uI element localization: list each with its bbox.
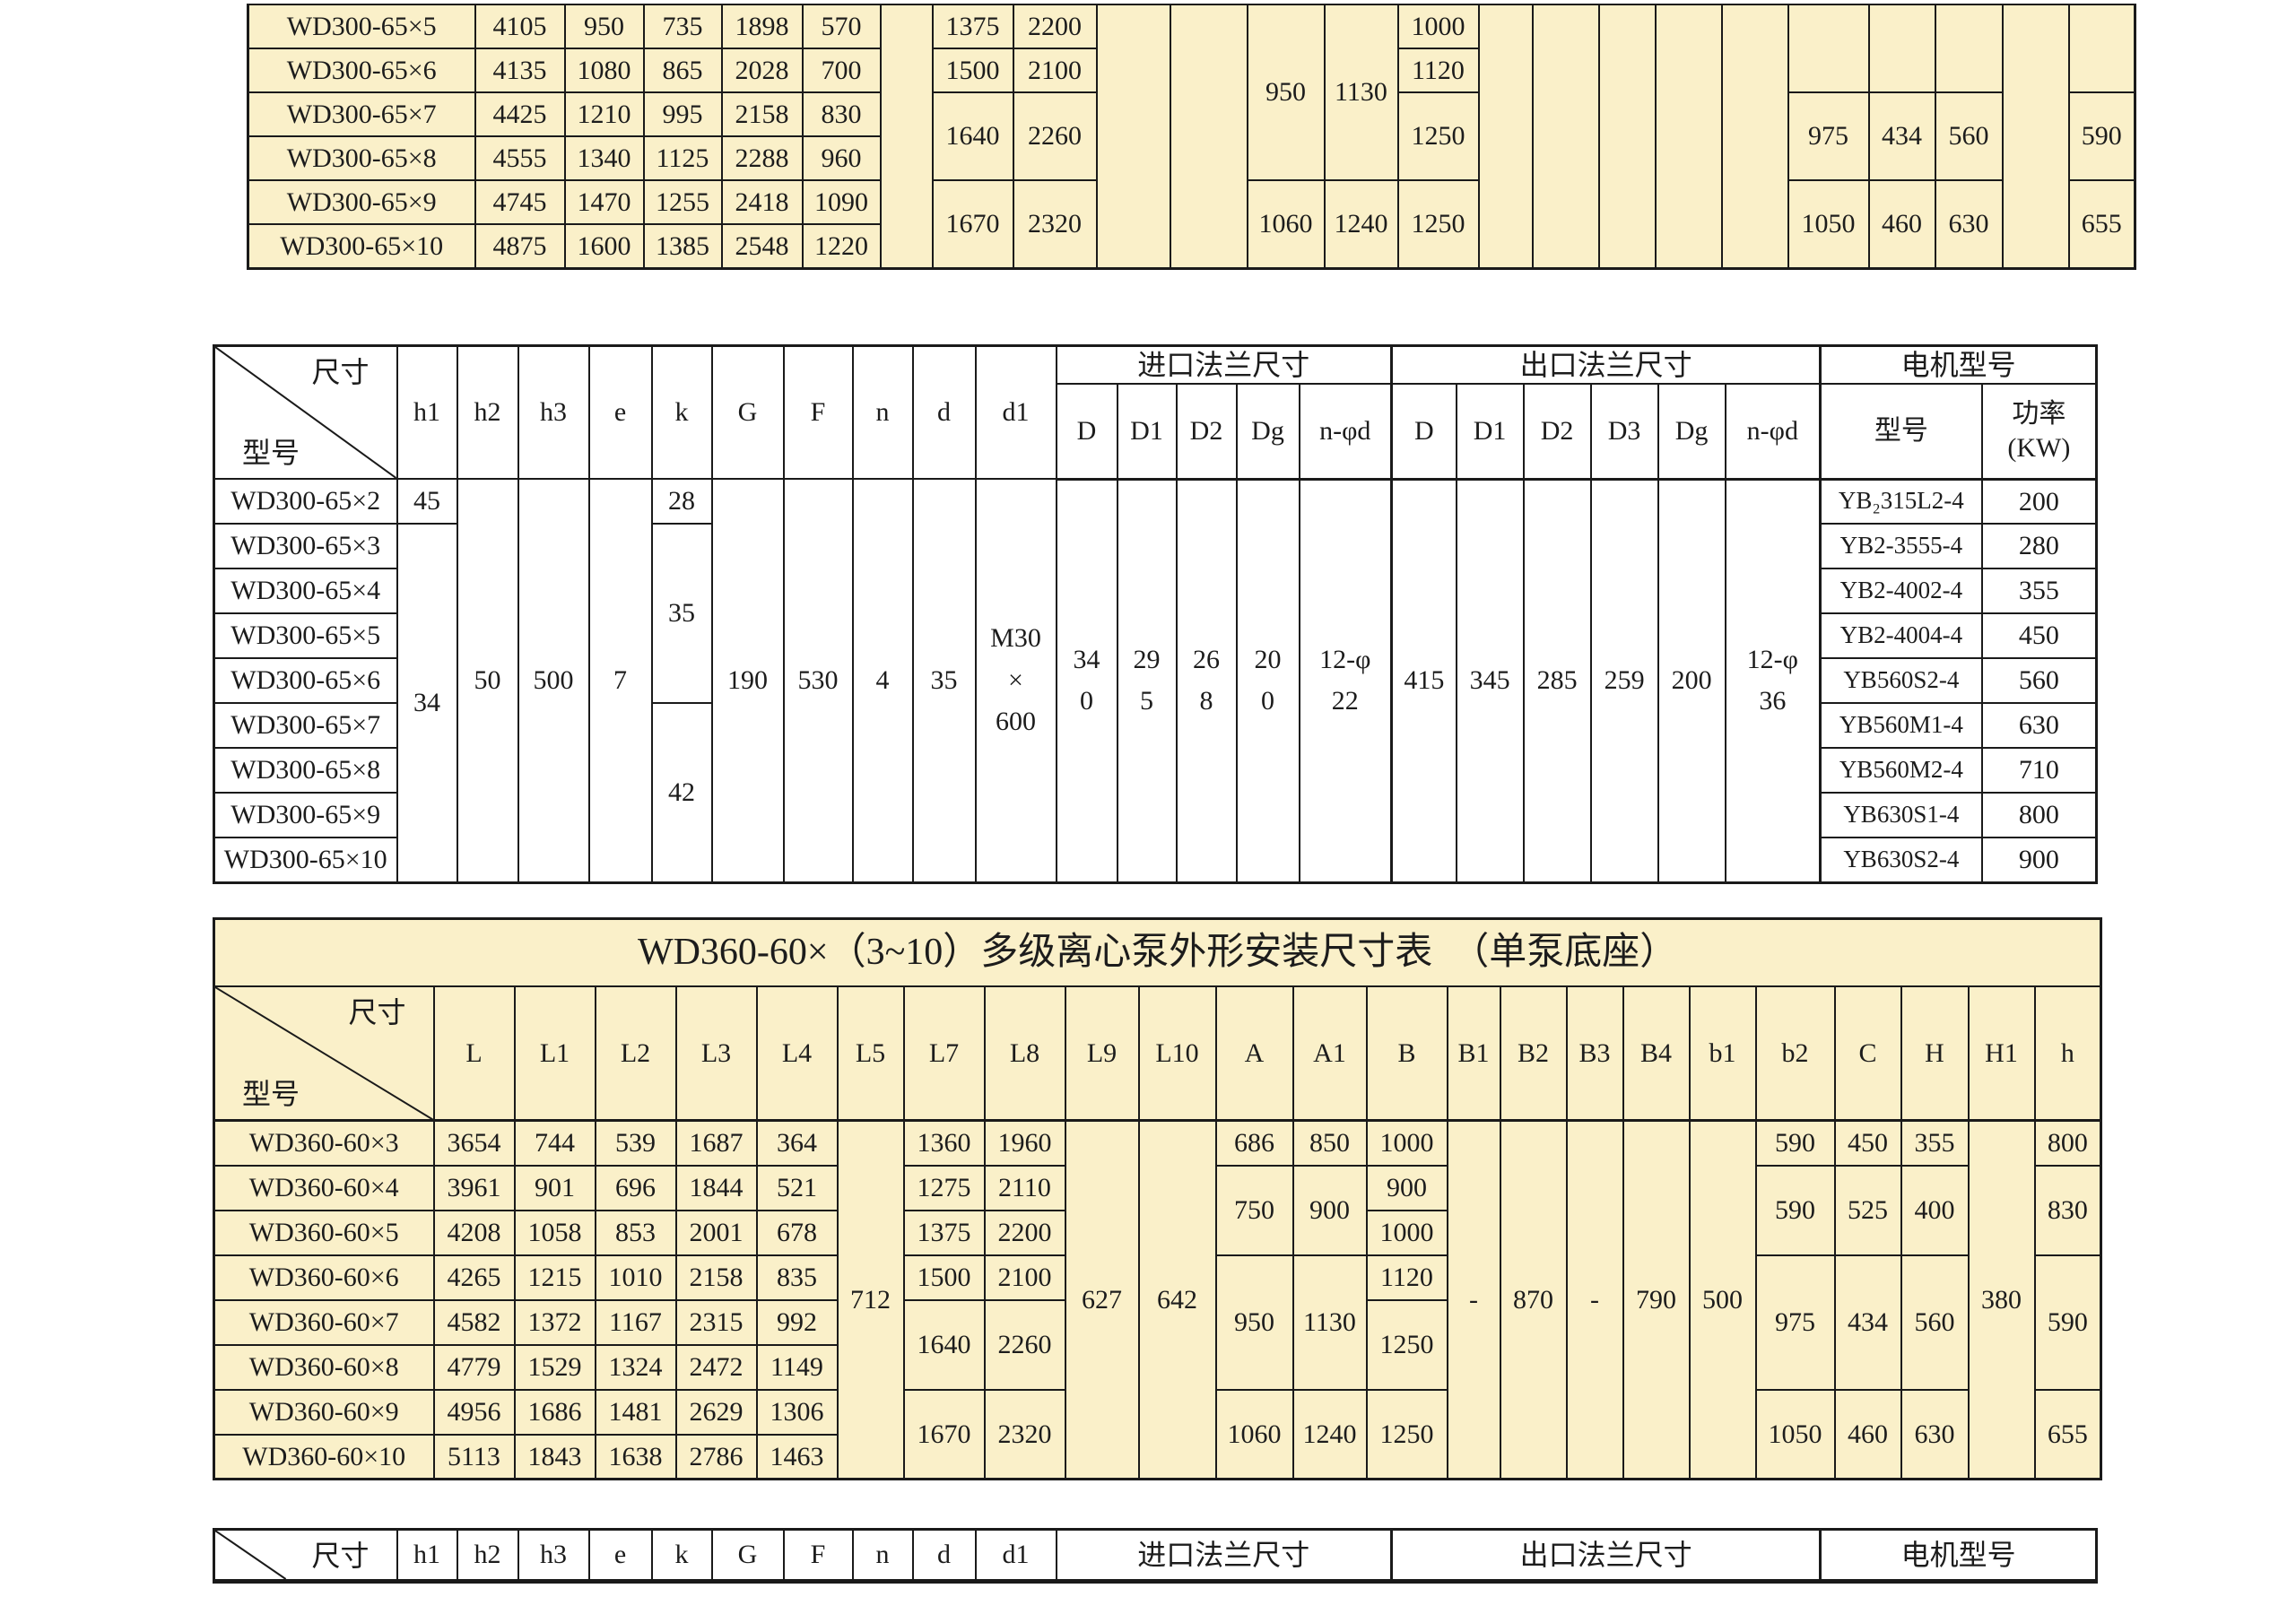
table-cell: d: [913, 1530, 976, 1582]
model-cell: WD360-60×9: [214, 1390, 434, 1435]
table-cell: 696: [596, 1166, 676, 1211]
table-cell: 2320: [985, 1390, 1065, 1480]
table-cell: -: [1448, 1121, 1500, 1480]
table-cell: 2315: [676, 1300, 757, 1345]
table-cell: 1167: [596, 1300, 676, 1345]
table-cell: 900: [1982, 838, 2097, 882]
table-cell: 3654: [434, 1121, 515, 1166]
table-cell: 530: [784, 479, 853, 882]
table-cell: 960: [803, 136, 881, 180]
table-cell: 1240: [1293, 1390, 1367, 1480]
table-cell: 1600: [565, 224, 644, 268]
table-cell: L4: [757, 986, 838, 1121]
table-cell: 500: [1690, 1121, 1756, 1480]
model-cell: WD360-60×4: [214, 1166, 434, 1211]
table-cell: 975: [1788, 92, 1869, 180]
table-cell: 1638: [596, 1435, 676, 1480]
model-cell: WD360-60×10: [214, 1435, 434, 1480]
table-cell: 259: [1591, 479, 1658, 882]
table-cell: L1: [515, 986, 596, 1121]
table-cell: L7: [904, 986, 985, 1121]
table-cell: n-φd: [1300, 384, 1392, 479]
table-cell: 560: [1901, 1255, 1969, 1390]
table-cell: 45: [397, 479, 457, 524]
table-cell: L8: [985, 986, 1065, 1121]
table-cell: 1149: [757, 1345, 838, 1390]
table-cell: 4425: [475, 92, 565, 136]
table-cell: 1240: [1325, 180, 1398, 268]
table-cell: k: [652, 346, 712, 480]
table-cell: 1640: [904, 1300, 985, 1390]
table-cell: 500: [518, 479, 589, 882]
table-cell: 1060: [1216, 1390, 1293, 1480]
table-cell: b2: [1756, 986, 1835, 1121]
table-cell: 901: [515, 1166, 596, 1211]
table-cell: L10: [1139, 986, 1216, 1121]
table-cell: d1: [976, 346, 1057, 480]
table-cell: 1250: [1398, 92, 1479, 180]
table-cell: 1670: [904, 1390, 985, 1480]
table-cell: 2158: [676, 1255, 757, 1300]
table-cell: 26 8: [1177, 479, 1237, 882]
table-cell: 539: [596, 1121, 676, 1166]
table-cell: L3: [676, 986, 757, 1121]
table-cell: 2028: [722, 48, 803, 92]
table-cell: D2: [1177, 384, 1237, 479]
table-cell: B: [1367, 986, 1448, 1121]
table-cell: 1898: [722, 4, 803, 48]
table-cell: 800: [2035, 1121, 2101, 1166]
table-cell: 712: [838, 1121, 904, 1480]
table-cell: [1479, 4, 1533, 268]
table-cell: n: [853, 1530, 913, 1582]
table-cell: 1125: [644, 136, 722, 180]
table-cell: 2100: [985, 1255, 1065, 1300]
table-cell: 630: [1935, 180, 2003, 268]
model-cell: WD300-65×7: [214, 703, 397, 748]
table-cell: 1000: [1367, 1211, 1448, 1255]
table-cell: 1050: [1756, 1390, 1835, 1480]
table-cell: YB₂315L2-4: [1821, 479, 1982, 524]
table-cell: 2200: [985, 1211, 1065, 1255]
table-cell: 744: [515, 1121, 596, 1166]
table-cell: 200: [1658, 479, 1726, 882]
table-cell: [1788, 4, 1869, 92]
table-cell: [2069, 4, 2135, 92]
table-cell: B4: [1623, 986, 1690, 1121]
table-cell: 4875: [475, 224, 565, 268]
table-cell: e: [589, 346, 652, 480]
table-cell: 1324: [596, 1345, 676, 1390]
table-cell: 630: [1901, 1390, 1969, 1480]
table-cell: k: [652, 1530, 712, 1582]
model-cell: WD300-65×9: [248, 180, 475, 224]
table-cell: YB560M1-4: [1821, 703, 1982, 748]
table-cell: [1170, 4, 1248, 268]
table-cell: 655: [2069, 180, 2135, 268]
table-cell: 355: [1901, 1121, 1969, 1166]
table-cell: D: [1392, 384, 1457, 479]
size-model-diagonal-cell: 尺寸型号: [214, 986, 434, 1121]
table-cell: n: [853, 346, 913, 480]
table-cell: 280: [1982, 524, 2097, 568]
table-cell: 1000: [1367, 1121, 1448, 1166]
table-cell: 1960: [985, 1121, 1065, 1166]
table-cell: 590: [2035, 1255, 2101, 1390]
model-cell: WD360-60×6: [214, 1255, 434, 1300]
table-cell: 434: [1869, 92, 1935, 180]
table-cell: 1120: [1367, 1255, 1448, 1300]
table-cell: 400: [1901, 1166, 1969, 1255]
table-cell: 1500: [904, 1255, 985, 1300]
table-cell: 200: [1982, 479, 2097, 524]
table-cell: 1375: [933, 4, 1013, 48]
table-cell: h3: [518, 1530, 589, 1582]
table-cell: 34 0: [1057, 479, 1118, 882]
table-cell: h: [2035, 986, 2101, 1121]
table-cell: A: [1216, 986, 1293, 1121]
table-cell: 1130: [1325, 4, 1398, 180]
document-page: WD300-65×5410595073518985701375220095011…: [0, 0, 2296, 1623]
table-cell: 560: [1935, 92, 2003, 180]
table-cell: 1250: [1367, 1390, 1448, 1480]
model-cell: WD300-65×6: [214, 658, 397, 703]
table-cell: 2260: [1013, 92, 1097, 180]
table-cell: [1097, 4, 1170, 268]
model-cell: WD300-65×5: [248, 4, 475, 48]
table-cell: 525: [1835, 1166, 1901, 1255]
table-cell: 20 0: [1237, 479, 1300, 882]
table-cell: 2320: [1013, 180, 1097, 268]
table-cell: G: [712, 346, 784, 480]
table-cell: YB2-4002-4: [1821, 568, 1982, 613]
table-cell: 460: [1835, 1390, 1901, 1480]
table-cell: B3: [1567, 986, 1623, 1121]
table-cell: 450: [1835, 1121, 1901, 1166]
table-cell: 1250: [1367, 1300, 1448, 1390]
table-cell: [1656, 4, 1722, 268]
table-cell: 5113: [434, 1435, 515, 1480]
table-cell: 627: [1065, 1121, 1139, 1480]
table-cell: 790: [1623, 1121, 1690, 1480]
table-cell: 1470: [565, 180, 644, 224]
table-cell: 190: [712, 479, 784, 882]
table-cell: -: [1567, 1121, 1623, 1480]
table-cell: Dg: [1237, 384, 1300, 479]
table-cell: L5: [838, 986, 904, 1121]
model-cell: WD300-65×9: [214, 793, 397, 838]
table-cell: b1: [1690, 986, 1756, 1121]
table-cell: 2158: [722, 92, 803, 136]
table-cell: 1080: [565, 48, 644, 92]
table-cell: L2: [596, 986, 676, 1121]
table-cell: 7: [589, 479, 652, 882]
model-cell: WD360-60×5: [214, 1211, 434, 1255]
table-cell: 4582: [434, 1300, 515, 1345]
table-cell: 4956: [434, 1390, 515, 1435]
size-model-diagonal-cell: 尺寸: [214, 1530, 397, 1582]
table-cell: 50: [457, 479, 518, 882]
table-cell: 1360: [904, 1121, 985, 1166]
table-cell: 1058: [515, 1211, 596, 1255]
table-cell: 2200: [1013, 4, 1097, 48]
table-cell: 835: [757, 1255, 838, 1300]
table-cell: YB630S2-4: [1821, 838, 1982, 882]
table-cell: h1: [397, 346, 457, 480]
table-cell: h1: [397, 1530, 457, 1582]
model-cell: WD300-65×10: [214, 838, 397, 882]
table-cell: C: [1835, 986, 1901, 1121]
diagonal-label-model: 型号: [242, 1076, 300, 1112]
table-cell: 590: [1756, 1121, 1835, 1166]
table-cell: [2003, 4, 2069, 268]
table-cell: 4: [853, 479, 913, 882]
table-cell: 1255: [644, 180, 722, 224]
table-cell: F: [784, 346, 853, 480]
table-cell: D2: [1524, 384, 1591, 479]
model-cell: WD360-60×3: [214, 1121, 434, 1166]
table-cell: 2260: [985, 1300, 1065, 1390]
table-cell: [1722, 4, 1788, 268]
table-cell: 355: [1982, 568, 2097, 613]
diagonal-label-size: 尺寸: [311, 354, 369, 390]
table-cell: 34: [397, 524, 457, 882]
table-cell: 642: [1139, 1121, 1216, 1480]
model-cell: WD300-65×8: [214, 748, 397, 793]
table-cell: 1500: [933, 48, 1013, 92]
table-cell: 35: [913, 479, 976, 882]
table-cell: 28: [652, 479, 712, 524]
table-cell: 型号: [1821, 384, 1982, 479]
model-cell: WD360-60×8: [214, 1345, 434, 1390]
table-cell: 1372: [515, 1300, 596, 1345]
table-cell: 521: [757, 1166, 838, 1211]
table-cell: 1687: [676, 1121, 757, 1166]
table-cell: 1120: [1398, 48, 1479, 92]
table-cell: 2110: [985, 1166, 1065, 1211]
table-cell: 4745: [475, 180, 565, 224]
table-cell: A1: [1293, 986, 1367, 1121]
table-cell: h2: [457, 346, 518, 480]
table-cell: B1: [1448, 986, 1500, 1121]
table-cell: 1000: [1398, 4, 1479, 48]
next-dimensions-table-header-partial: 尺寸h1h2h3ekGFndd1进口法兰尺寸出口法兰尺寸电机型号: [213, 1528, 2098, 1584]
table-cell: 1215: [515, 1255, 596, 1300]
table-cell: 4105: [475, 4, 565, 48]
table-cell: 1050: [1788, 180, 1869, 268]
table-cell: 1275: [904, 1166, 985, 1211]
table-cell: 750: [1216, 1166, 1293, 1255]
inlet-flange-group-header: 进口法兰尺寸: [1057, 1530, 1392, 1582]
table-cell: d: [913, 346, 976, 480]
table-cell: 460: [1869, 180, 1935, 268]
diagonal-label-model: 型号: [242, 435, 300, 471]
motor-model-group-header: 电机型号: [1821, 1530, 2097, 1582]
table-cell: 2548: [722, 224, 803, 268]
table-cell: 950: [565, 4, 644, 48]
table-cell: 710: [1982, 748, 2097, 793]
table-cell: 4779: [434, 1345, 515, 1390]
table-cell: 870: [1500, 1121, 1567, 1480]
table-cell: 1670: [933, 180, 1013, 268]
table-cell: YB2-3555-4: [1821, 524, 1982, 568]
table-cell: D: [1057, 384, 1118, 479]
table-cell: YB560S2-4: [1821, 658, 1982, 703]
table-cell: 830: [803, 92, 881, 136]
table-cell: 975: [1756, 1255, 1835, 1390]
table-cell: D3: [1591, 384, 1658, 479]
table-cell: D1: [1457, 384, 1524, 479]
model-cell: WD300-65×10: [248, 224, 475, 268]
table-cell: M30 × 600: [976, 479, 1057, 882]
table-cell: [1935, 4, 2003, 92]
table-cell: 865: [644, 48, 722, 92]
table-cell: 1640: [933, 92, 1013, 180]
table-cell: d1: [976, 1530, 1057, 1582]
table-cell: YB560M2-4: [1821, 748, 1982, 793]
model-cell: WD300-65×8: [248, 136, 475, 180]
table-cell: h3: [518, 346, 589, 480]
table-cell: 560: [1982, 658, 2097, 703]
table-cell: 950: [1216, 1255, 1293, 1390]
table-cell: 655: [2035, 1390, 2101, 1480]
table-cell: 1060: [1248, 180, 1325, 268]
table-cell: 995: [644, 92, 722, 136]
table-cell: 1250: [1398, 180, 1479, 268]
table-cell: 42: [652, 703, 712, 882]
model-cell: WD300-65×4: [214, 568, 397, 613]
inlet-flange-group-header: 进口法兰尺寸: [1057, 346, 1392, 385]
diagonal-label-size: 尺寸: [348, 994, 405, 1030]
table-cell: 2001: [676, 1211, 757, 1255]
model-cell: WD360-60×7: [214, 1300, 434, 1345]
table-cell: B2: [1500, 986, 1567, 1121]
table-cell: h2: [457, 1530, 518, 1582]
table-cell: 1010: [596, 1255, 676, 1300]
table-cell: e: [589, 1530, 652, 1582]
table-cell: 415: [1392, 479, 1457, 882]
table-cell: 800: [1982, 793, 2097, 838]
motor-model-group-header: 电机型号: [1821, 346, 2097, 385]
table-cell: 850: [1293, 1121, 1367, 1166]
table-cell: [1869, 4, 1935, 92]
table-cell: 4135: [475, 48, 565, 92]
table-cell: 2100: [1013, 48, 1097, 92]
table-cell: 853: [596, 1211, 676, 1255]
table-title: WD360-60×（3~10）多级离心泵外形安装尺寸表 （单泵底座）: [214, 919, 2101, 986]
outlet-flange-group-header: 出口法兰尺寸: [1392, 1530, 1821, 1582]
table-cell: 950: [1248, 4, 1325, 180]
table-cell: 1220: [803, 224, 881, 268]
table-cell: 830: [2035, 1166, 2101, 1255]
table-cell: [1599, 4, 1656, 268]
outlet-flange-group-header: 出口法兰尺寸: [1392, 346, 1821, 385]
model-cell: WD300-65×2: [214, 479, 397, 524]
table-cell: 900: [1293, 1166, 1367, 1255]
table-cell: Dg: [1658, 384, 1726, 479]
table-cell: 1844: [676, 1166, 757, 1211]
table-cell: YB2-4004-4: [1821, 613, 1982, 658]
table-cell: 2629: [676, 1390, 757, 1435]
diagonal-label-size: 尺寸: [311, 1538, 369, 1574]
table-cell: 590: [1756, 1166, 1835, 1255]
table-cell: 570: [803, 4, 881, 48]
table-cell: 4265: [434, 1255, 515, 1300]
table-cell: 12-φ 22: [1300, 479, 1392, 882]
table-cell: 1481: [596, 1390, 676, 1435]
table-cell: YB630S1-4: [1821, 793, 1982, 838]
table-cell: 364: [757, 1121, 838, 1166]
table-cell: 29 5: [1118, 479, 1177, 882]
table-cell: 700: [803, 48, 881, 92]
table-cell: 1375: [904, 1211, 985, 1255]
table-cell: 12-φ 36: [1726, 479, 1821, 882]
table-cell: 686: [1216, 1121, 1293, 1166]
table-cell: 992: [757, 1300, 838, 1345]
table-cell: L9: [1065, 986, 1139, 1121]
table-cell: 2418: [722, 180, 803, 224]
table-cell: 735: [644, 4, 722, 48]
table-cell: n-φd: [1726, 384, 1821, 479]
table-cell: 3961: [434, 1166, 515, 1211]
table-cell: 2786: [676, 1435, 757, 1480]
size-model-diagonal-cell: 尺寸型号: [214, 346, 397, 480]
table-cell: 1130: [1293, 1255, 1367, 1390]
wd300-65-outline-dimensions-table-partial: WD300-65×5410595073518985701375220095011…: [247, 4, 2136, 270]
table-cell: 1306: [757, 1390, 838, 1435]
table-cell: 1463: [757, 1435, 838, 1480]
table-cell: 434: [1835, 1255, 1901, 1390]
table-cell: 4208: [434, 1211, 515, 1255]
model-cell: WD300-65×6: [248, 48, 475, 92]
table-cell: D1: [1118, 384, 1177, 479]
table-cell: L: [434, 986, 515, 1121]
table-cell: G: [712, 1530, 784, 1582]
wd300-65-flange-and-motor-dimensions-table: 尺寸型号h1h2h3ekGFndd1进口法兰尺寸出口法兰尺寸电机型号DD1D2D…: [213, 344, 2098, 884]
table-cell: 345: [1457, 479, 1524, 882]
model-cell: WD300-65×3: [214, 524, 397, 568]
table-cell: 285: [1524, 479, 1591, 882]
table-cell: F: [784, 1530, 853, 1582]
table-cell: 2288: [722, 136, 803, 180]
table-cell: H1: [1969, 986, 2035, 1121]
table-cell: 450: [1982, 613, 2097, 658]
table-cell: 630: [1982, 703, 2097, 748]
table-cell: 1385: [644, 224, 722, 268]
model-cell: WD300-65×7: [248, 92, 475, 136]
table-cell: 1340: [565, 136, 644, 180]
wd360-60-outline-dimensions-table: WD360-60×（3~10）多级离心泵外形安装尺寸表 （单泵底座）尺寸型号LL…: [213, 917, 2102, 1480]
table-cell: 678: [757, 1211, 838, 1255]
table-cell: 35: [652, 524, 712, 703]
table-cell: [881, 4, 933, 268]
table-cell: 1210: [565, 92, 644, 136]
table-cell: 1843: [515, 1435, 596, 1480]
table-cell: 4555: [475, 136, 565, 180]
table-cell: 590: [2069, 92, 2135, 180]
table-cell: 900: [1367, 1166, 1448, 1211]
table-cell: 功率 (KW): [1982, 384, 2097, 479]
model-cell: WD300-65×5: [214, 613, 397, 658]
table-cell: 1090: [803, 180, 881, 224]
table-cell: 1686: [515, 1390, 596, 1435]
table-cell: 1529: [515, 1345, 596, 1390]
table-cell: [1533, 4, 1599, 268]
table-cell: 2472: [676, 1345, 757, 1390]
table-cell: 380: [1969, 1121, 2035, 1480]
table-cell: H: [1901, 986, 1969, 1121]
